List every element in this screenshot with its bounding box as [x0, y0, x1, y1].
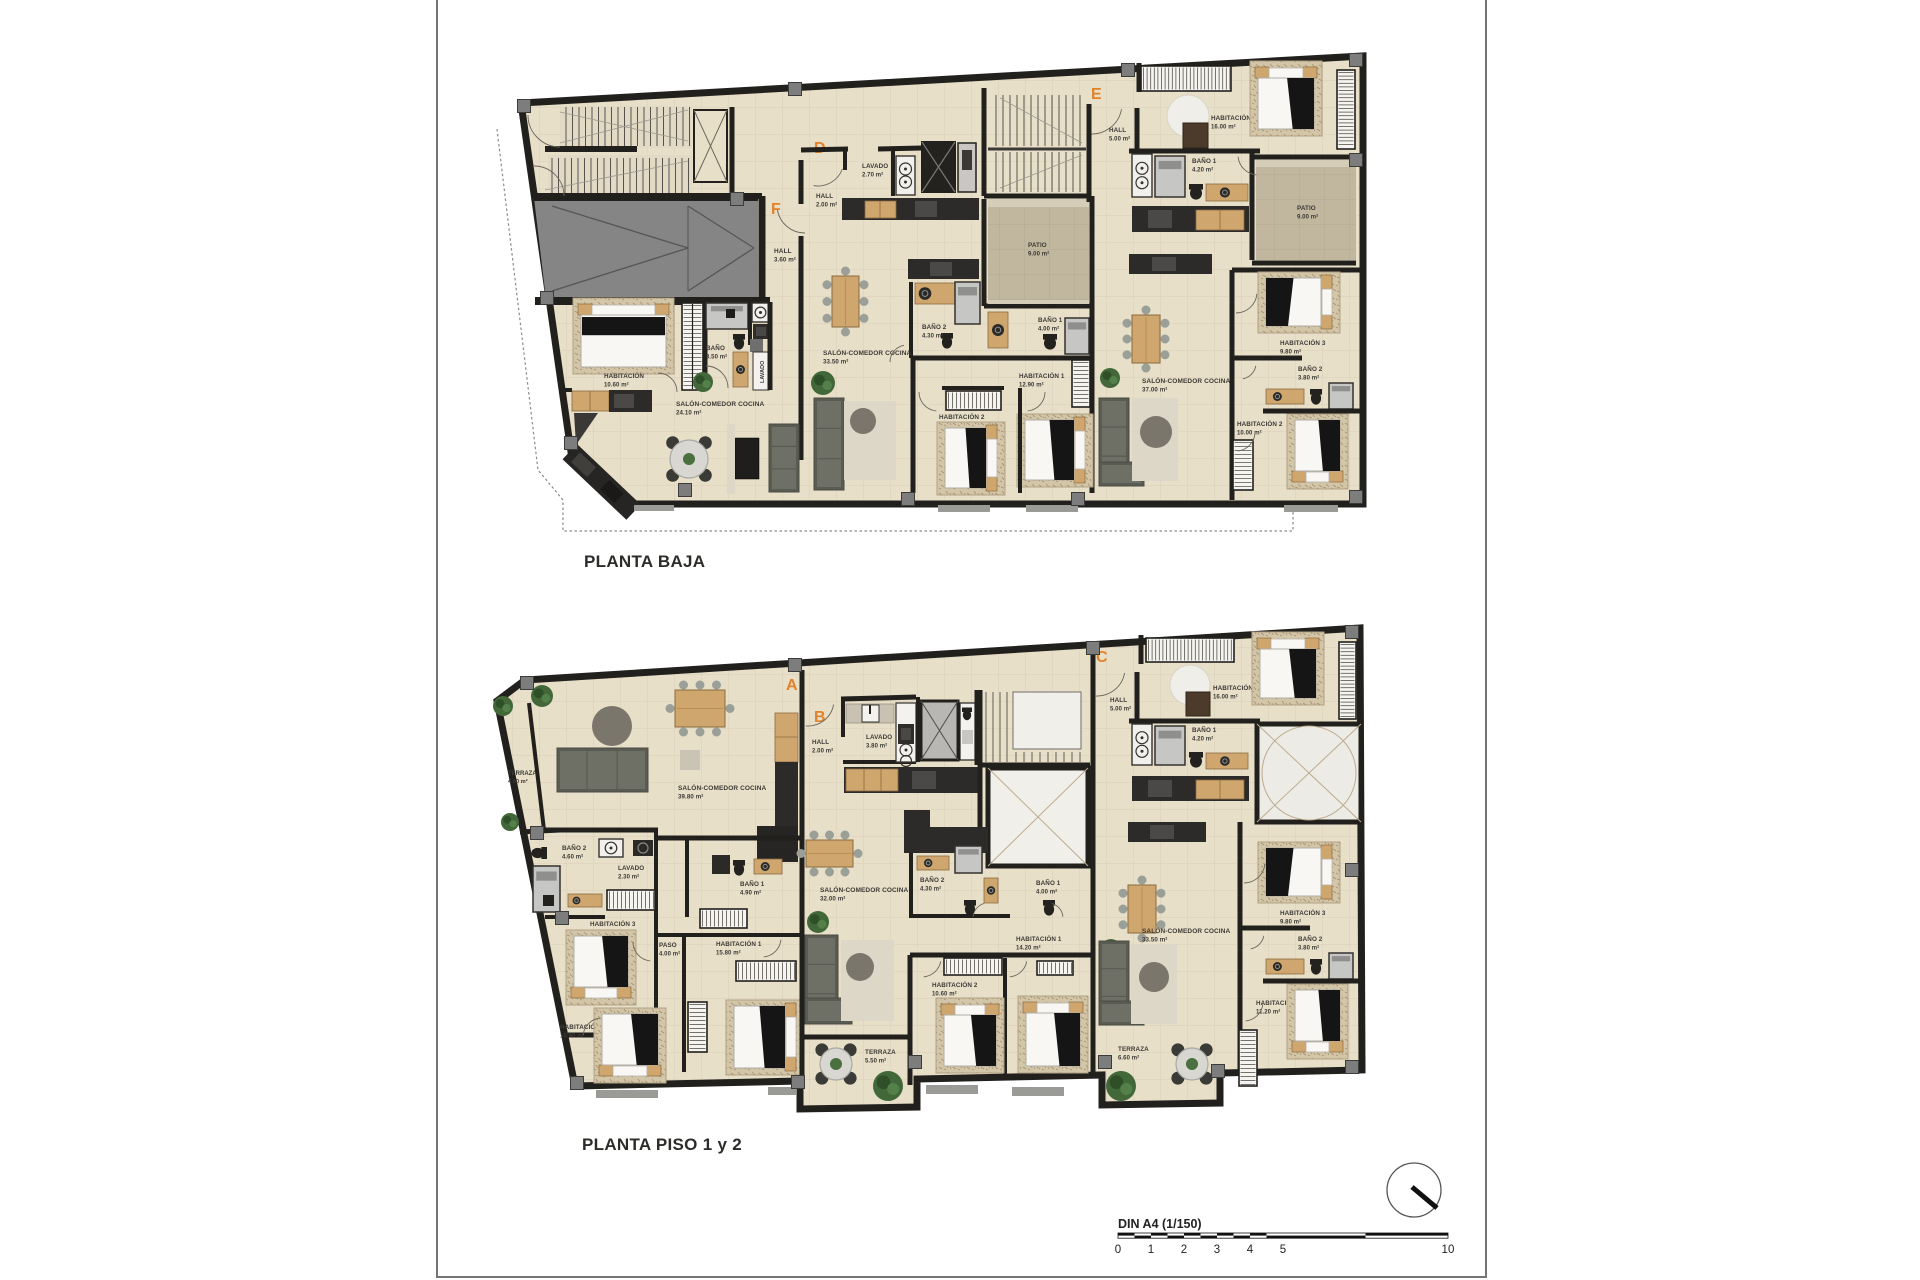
svg-text:3.60 m²: 3.60 m²	[774, 257, 796, 264]
svg-text:BAÑO 1: BAÑO 1	[1192, 725, 1217, 734]
svg-text:2.00 m²: 2.00 m²	[812, 748, 833, 755]
svg-text:HABITACIÓN 3: HABITACIÓN 3	[1280, 908, 1326, 917]
svg-text:HABITACIÓN 1: HABITACIÓN 1	[716, 939, 762, 948]
svg-text:16.00 m²: 16.00 m²	[1213, 694, 1238, 701]
svg-text:12.90 m²: 12.90 m²	[1019, 382, 1044, 389]
svg-text:9.80 m²: 9.80 m²	[1280, 349, 1301, 356]
svg-text:33.50 m²: 33.50 m²	[1142, 937, 1167, 944]
svg-text:BAÑO 2: BAÑO 2	[1298, 934, 1323, 943]
svg-text:4.00 m²: 4.00 m²	[659, 951, 680, 958]
svg-text:HABITACIÓN 3: HABITACIÓN 3	[1280, 338, 1326, 347]
svg-text:BAÑO 1: BAÑO 1	[1192, 156, 1217, 165]
svg-text:15.80 m²: 15.80 m²	[716, 950, 741, 957]
svg-text:BAÑO 1: BAÑO 1	[740, 879, 765, 888]
svg-text:BAÑO 2: BAÑO 2	[1298, 364, 1323, 373]
svg-text:PLANTA PISO 1 y 2: PLANTA PISO 1 y 2	[582, 1135, 742, 1154]
svg-text:4.60 m²: 4.60 m²	[562, 854, 583, 861]
svg-text:6.60 m²: 6.60 m²	[1118, 1055, 1139, 1062]
svg-text:5: 5	[1280, 1244, 1287, 1256]
svg-text:SALÓN-COMEDOR COCINA: SALÓN-COMEDOR COCINA	[820, 885, 909, 894]
svg-text:HALL: HALL	[774, 248, 792, 255]
svg-text:2: 2	[1181, 1244, 1188, 1256]
svg-text:PLANTA BAJA: PLANTA BAJA	[584, 552, 705, 571]
svg-text:BAÑO 2: BAÑO 2	[920, 875, 945, 884]
svg-text:0: 0	[1115, 1244, 1122, 1256]
svg-text:4.00 m²: 4.00 m²	[508, 778, 528, 785]
svg-text:5.50 m²: 5.50 m²	[865, 1058, 886, 1065]
svg-text:BAÑO 2: BAÑO 2	[562, 843, 587, 852]
svg-text:SALÓN-COMEDOR COCINA: SALÓN-COMEDOR COCINA	[1142, 926, 1231, 935]
svg-text:BAÑO 1: BAÑO 1	[1038, 315, 1063, 324]
svg-text:HABITACIÓN 2: HABITACIÓN 2	[1237, 419, 1283, 428]
svg-text:LAVADO: LAVADO	[618, 865, 644, 872]
svg-text:5.00 m²: 5.00 m²	[1109, 136, 1130, 143]
svg-text:4.00 m²: 4.00 m²	[1036, 889, 1057, 896]
svg-text:3: 3	[1214, 1244, 1221, 1256]
svg-text:16.00 m²: 16.00 m²	[1211, 124, 1236, 131]
svg-text:2.70 m²: 2.70 m²	[862, 172, 883, 179]
svg-text:4.90 m²: 4.90 m²	[740, 890, 761, 897]
svg-text:PASO: PASO	[659, 942, 677, 949]
svg-text:LAVADO: LAVADO	[862, 163, 888, 170]
svg-text:4.00 m²: 4.00 m²	[1038, 326, 1059, 333]
svg-text:9.00 m²: 9.00 m²	[1028, 251, 1049, 258]
svg-text:14.20 m²: 14.20 m²	[1016, 945, 1041, 952]
svg-text:9.00 m²: 9.00 m²	[1297, 214, 1318, 221]
svg-text:SALÓN-COMEDOR COCINA: SALÓN-COMEDOR COCINA	[676, 399, 765, 408]
svg-text:HALL: HALL	[1110, 697, 1127, 704]
svg-text:HALL: HALL	[812, 739, 829, 746]
svg-text:LAVADO: LAVADO	[866, 734, 892, 741]
svg-text:HABITACIÓN: HABITACIÓN	[604, 371, 644, 380]
svg-text:4.20 m²: 4.20 m²	[1192, 736, 1213, 743]
svg-text:10.60 m²: 10.60 m²	[604, 382, 629, 389]
svg-text:BAÑO: BAÑO	[706, 343, 725, 352]
svg-text:3.80 m²: 3.80 m²	[1298, 945, 1319, 952]
svg-text:SALÓN-COMEDOR COCINA: SALÓN-COMEDOR COCINA	[823, 348, 912, 357]
svg-text:BAÑO 1: BAÑO 1	[1036, 878, 1061, 887]
svg-text:HABITACIÓN 2: HABITACIÓN 2	[939, 412, 985, 421]
svg-text:E: E	[1091, 86, 1102, 103]
svg-text:4.30 m²: 4.30 m²	[920, 886, 941, 893]
svg-text:37.00 m²: 37.00 m²	[1142, 387, 1167, 394]
svg-text:F: F	[771, 201, 781, 218]
svg-text:5.00 m²: 5.00 m²	[1110, 706, 1131, 713]
svg-text:BAÑO 2: BAÑO 2	[922, 322, 947, 331]
svg-text:4.20 m²: 4.20 m²	[1192, 167, 1213, 174]
svg-text:PATIO: PATIO	[1297, 205, 1316, 212]
svg-text:HABITACIÓN 2: HABITACIÓN 2	[932, 980, 978, 989]
svg-text:HALL: HALL	[1109, 127, 1126, 134]
svg-text:HABITACIÓN 3: HABITACIÓN 3	[590, 919, 636, 928]
svg-text:3.50 m²: 3.50 m²	[706, 354, 727, 361]
svg-text:2.30 m²: 2.30 m²	[618, 874, 639, 881]
svg-text:4: 4	[1247, 1244, 1254, 1256]
svg-text:4.30 m²: 4.30 m²	[922, 333, 943, 340]
svg-text:PATIO: PATIO	[1028, 242, 1047, 249]
svg-text:10: 10	[1442, 1244, 1455, 1256]
svg-text:HABITACIÓN 1: HABITACIÓN 1	[1019, 371, 1065, 380]
svg-text:TERRAZA: TERRAZA	[508, 771, 537, 777]
svg-text:TERRAZA: TERRAZA	[865, 1049, 896, 1056]
svg-text:TERRAZA: TERRAZA	[1118, 1046, 1149, 1053]
svg-text:9.80 m²: 9.80 m²	[1280, 919, 1301, 926]
svg-text:10.60 m²: 10.60 m²	[932, 991, 957, 998]
svg-text:10.00 m²: 10.00 m²	[1237, 430, 1262, 437]
svg-text:39.80 m²: 39.80 m²	[678, 794, 703, 801]
svg-text:2.00 m²: 2.00 m²	[816, 202, 837, 209]
svg-text:3.80 m²: 3.80 m²	[866, 743, 887, 750]
svg-text:DIN A4 (1/150): DIN A4 (1/150)	[1118, 1217, 1202, 1231]
svg-text:HALL: HALL	[816, 193, 833, 200]
svg-text:24.10 m²: 24.10 m²	[676, 410, 701, 417]
svg-text:A: A	[786, 677, 798, 694]
svg-text:33.50 m²: 33.50 m²	[823, 359, 848, 366]
svg-text:HABITACIÓN 1: HABITACIÓN 1	[1016, 934, 1062, 943]
svg-text:LAVADO: LAVADO	[760, 360, 766, 383]
svg-text:SALÓN-COMEDOR COCINA: SALÓN-COMEDOR COCINA	[1142, 376, 1231, 385]
svg-text:1: 1	[1148, 1244, 1155, 1256]
svg-text:32.00 m²: 32.00 m²	[820, 896, 845, 903]
svg-text:3.80 m²: 3.80 m²	[1298, 375, 1319, 382]
svg-text:10.90 m²: 10.90 m²	[560, 1033, 585, 1040]
svg-text:SALÓN-COMEDOR COCINA: SALÓN-COMEDOR COCINA	[678, 783, 767, 792]
